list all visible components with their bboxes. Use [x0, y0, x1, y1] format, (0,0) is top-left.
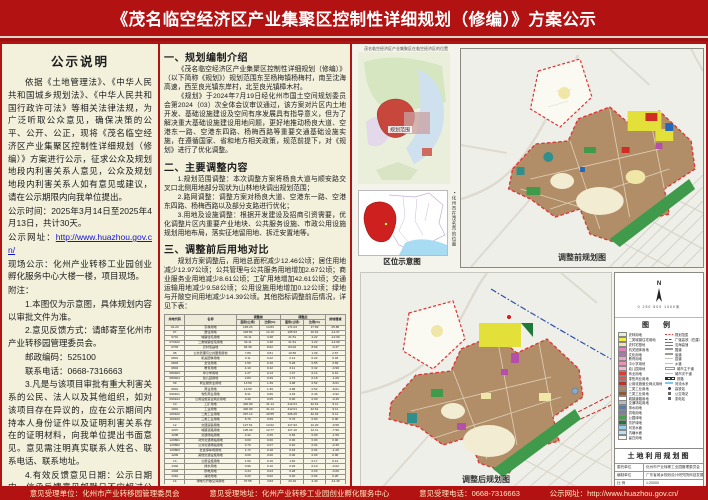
titleblock-title: 土地利用规划图	[615, 449, 703, 463]
notice-paragraph: 现场公示：化州产业转移工业园创业孵化服务中心大楼一楼，项目现场。	[8, 258, 152, 284]
compass: N 0 250 500 1000米	[615, 273, 703, 318]
map-before: 调整前规划图	[460, 48, 704, 268]
page-title: 《茂名临空经济区产业集聚区控制性详细规划（修编）》方案公示	[112, 6, 597, 30]
sections: 一、规划编制介绍《茂名临空经济区产业集聚区控制性详细规划（修编）》（以下简称《规…	[164, 46, 346, 312]
region-inset-svg	[359, 191, 447, 255]
notice-panel: 公示说明 依据《土地管理法》、《中华人民共和国城乡规划法》、《中华人民共和国行政…	[2, 44, 158, 486]
header-bar: 《茂名临空经济区产业集聚区控制性详细规划（修编）》方案公示	[0, 0, 708, 38]
legend-swatches: 农林用地二类城镇住宅用地农村宅基地机关团体用地文化用地教育用地中小学用地幼儿园用…	[618, 332, 662, 447]
legend-title: 图 例	[615, 318, 703, 331]
section-paragraph: 规划方案调整后，用地总面积减少12.46公顷；居住用地减少12.97公顷；公共管…	[164, 258, 346, 312]
blue-dash-symbol-icon	[665, 339, 673, 340]
section-heading: 三、调整前后用地对比	[164, 241, 346, 256]
map-after-svg	[361, 273, 611, 486]
planning-scope-label: 规划范围	[390, 127, 410, 134]
red-dash-symbol-icon	[665, 334, 673, 335]
titleblock: 土地利用规划图 委托单位化州市产业转移工业园管理委员会编制单位广东省城乡规划设计…	[615, 448, 703, 486]
square-symbol-icon	[668, 397, 671, 400]
region-inset-caption: 区位示意图	[358, 256, 446, 267]
map-before-caption: 调整前规划图	[461, 252, 703, 263]
table-row: 14绿地与开敞空间用地37.553.8323.162.40-14.39	[165, 479, 346, 484]
north-arrow-icon	[652, 288, 666, 304]
thin-line-symbol-icon	[665, 363, 673, 364]
footer-bar: 意见受理单位：化州市产业转移园管理委员会 意见受理地址：化州产业转移工业园创业孵…	[0, 486, 708, 500]
section-heading: 一、规划编制介绍	[164, 49, 346, 64]
section-paragraph: 3.用地及设施调整：根据开发建设及招商引资需要，优化调整片区内重要产业地块、公共…	[164, 212, 346, 239]
maps-panel: 茂名临空经济区产业集聚区在临空经济区的位置 规划范围	[352, 44, 706, 486]
legend: 农林用地二类城镇住宅用地农村宅基地机关团体用地文化用地教育用地中小学用地幼儿园用…	[615, 331, 703, 448]
titleblock-label: 编制单位	[615, 472, 644, 479]
legend-symbols: 规划范围广湛高铁（在建）沈海高速国道省道县道乡道城市主干道城市次干道铁路河流水系…	[665, 332, 702, 447]
grey-line-symbol-icon	[665, 348, 673, 349]
notice-paragraph: 公示网址：http://www.huazhou.gov.cn/	[8, 231, 152, 257]
notice-heading: 公示说明	[8, 51, 152, 70]
vertical-caption: ▪化州市在茂名市的位置	[451, 190, 457, 276]
notice-paragraph: 2.意见反馈方式：请邮寄至化州市产业转移园管理委员会。	[8, 324, 152, 350]
legend-label: 留白用地	[629, 435, 643, 440]
section-paragraph: 《规划》于2024年7月19日经化州市国土空间规划委员会第2024（03）次全体…	[164, 93, 346, 156]
thin-line-symbol-icon	[665, 358, 673, 359]
legend-panel: N 0 250 500 1000米 图 例 农林用地二类城镇住宅用地农村宅基地机…	[614, 272, 704, 486]
titleblock-value: 化州市产业转移工业园管理委员会	[644, 464, 703, 471]
titleblock-rows: 委托单位化州市产业转移工业园管理委员会编制单位广东省城乡规划设计研究院科技发展有…	[615, 463, 703, 486]
notice-paragraph: 4.有效反馈意见日期：公示日期内，信函反馈意见邮戳日不应超过公示日期最后一天的2…	[8, 469, 152, 487]
content: 公示说明 依据《土地管理法》、《中华人民共和国城乡规划法》、《中华人民共和国行政…	[2, 44, 706, 486]
region-inset-map	[358, 190, 448, 256]
legend-symbol-label: 变电站	[675, 396, 685, 401]
map-before-svg	[461, 49, 703, 267]
square-symbol-icon	[668, 392, 671, 395]
notice-paragraphs: 依据《土地管理法》、《中华人民共和国城乡规划法》、《中华人民共和国行政许可法》等…	[8, 76, 152, 486]
titleblock-row: 比 例1:20000	[615, 479, 703, 486]
map-after-caption: 调整后规划图	[361, 474, 611, 485]
footer-accepting-phone: 意见受理电话：0668-7316663	[419, 488, 520, 499]
main-text-panel: 一、规划编制介绍《茂名临空经济区产业集聚区控制性详细规划（修编）》（以下简称《规…	[160, 44, 350, 486]
grey-line-symbol-icon	[665, 353, 673, 354]
blue-line-symbol-icon	[665, 382, 673, 384]
north-label: N	[657, 281, 661, 287]
landuse-table: 用地代码名称调整前调整后用地增减面积(公顷)比例(%)面积(公顷)比例(%)01…	[164, 314, 346, 484]
titleblock-row: 委托单位化州市产业转移工业园管理委员会	[615, 463, 703, 471]
titleblock-row: 编制单位广东省城乡规划设计研究院科技发展有限公司	[615, 471, 703, 479]
location-inset-svg: 规划范围	[358, 52, 450, 184]
notice-paragraph: 邮政编码：525100	[8, 351, 152, 364]
table-head: 用地代码名称调整前调整后用地增减面积(公顷)比例(%)面积(公顷)比例(%)	[165, 315, 346, 325]
legend-symbol-item: 变电站	[665, 396, 702, 401]
section-paragraph: 2.路网调整：调整方案对杨良大道、空港东一路、空港东四路、杨梅西路以及部分支路进…	[164, 194, 346, 212]
thin-line-symbol-icon	[665, 373, 673, 374]
notice-paragraph: 1.本图仅为示意图，具体规划内容以审批文件为准。	[8, 298, 152, 324]
titleblock-value: 广东省城乡规划设计研究院科技发展有限公司	[644, 472, 703, 479]
notice-paragraph: 附注：	[8, 284, 152, 297]
poster: { "title": "《茂名临空经济区产业集聚区控制性详细规划（修编）》方案公…	[0, 0, 708, 500]
footer-accepting-address: 意见受理地址：化州产业转移工业园创业孵化服务中心	[209, 488, 389, 499]
white-line-symbol-icon	[665, 367, 675, 371]
location-inset-map: 规划范围	[358, 52, 450, 184]
legend-swatch	[618, 435, 627, 440]
dot-symbol-icon	[668, 387, 671, 390]
legend-item: 留白用地	[618, 435, 662, 440]
section-heading: 二、主要调整内容	[164, 159, 346, 174]
footer-accepting-unit: 意见受理单位：化州市产业转移园管理委员会	[30, 488, 180, 499]
section-paragraph: 1.规划范围调整：本次调整方案将杨良大道与顺安路交叉口北侧用地部分现状为山林地块…	[164, 176, 346, 194]
scale-bar: 0 250 500 1000米	[638, 305, 681, 310]
notice-paragraph: 联系电话：0668-7316663	[8, 365, 152, 378]
notice-paragraph: 依据《土地管理法》、《中华人民共和国城乡规划法》、《中华人民共和国行政许可法》等…	[8, 76, 152, 204]
notice-paragraph: 公示时间：2025年3月14日至2025年4月13日，共计30天。	[8, 205, 152, 231]
double-line-symbol-icon	[665, 342, 673, 346]
titleblock-label: 委托单位	[615, 464, 644, 471]
section-paragraph: 《茂名临空经济区产业集聚区控制性详细规划（修编）》（以下简称《规划》）规划范围东…	[164, 66, 346, 93]
map-after: 调整后规划图	[360, 272, 612, 486]
notice-paragraph: 3.凡是与该项目审批有重大利害关系的公民、法人以及其他组织，如对该项目存在异议的…	[8, 378, 152, 467]
landuse-table-wrap: 用地代码名称调整前调整后用地增减面积(公顷)比例(%)面积(公顷)比例(%)01…	[164, 314, 346, 484]
footer-website[interactable]: 公示网址：http://www.huazhou.gov.cn/	[550, 488, 679, 499]
rail-line-symbol-icon	[665, 377, 675, 380]
